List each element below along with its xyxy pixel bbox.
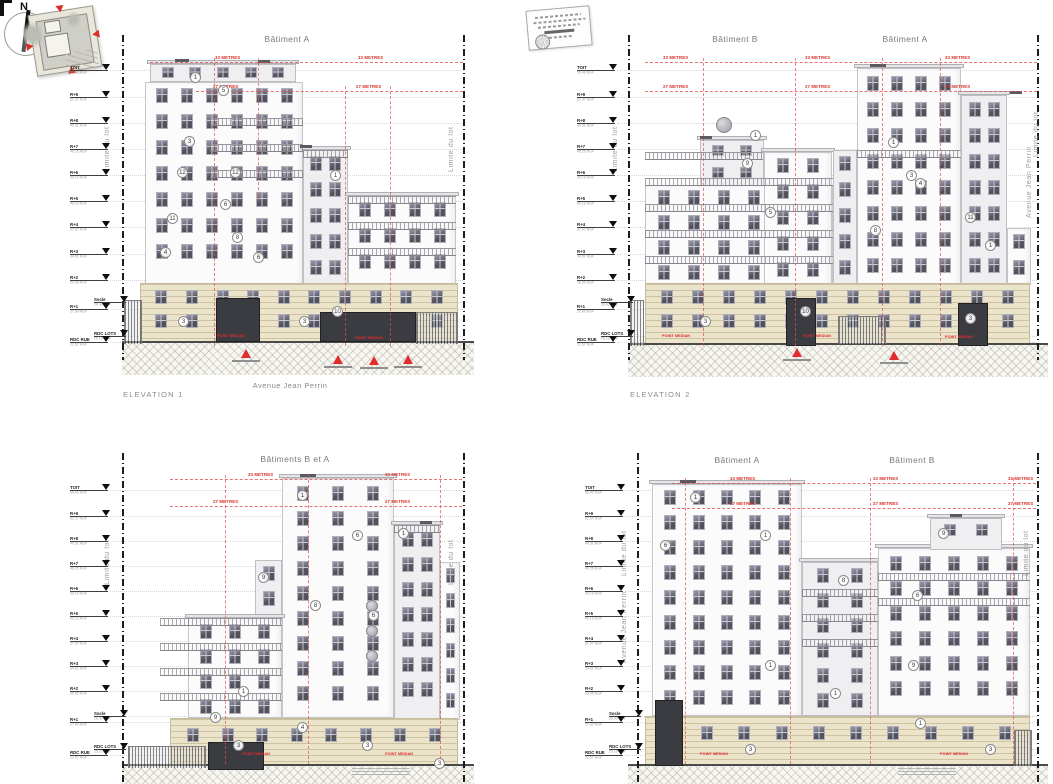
point-median-label: POINT MEDIAN — [700, 752, 728, 756]
window — [332, 561, 344, 576]
fence — [128, 746, 206, 768]
window — [367, 636, 379, 651]
lot-limit-text: Avenue Jean Perrin — [621, 591, 628, 663]
window — [701, 726, 713, 740]
window — [332, 511, 344, 526]
window — [816, 290, 828, 304]
window — [278, 314, 290, 328]
window — [721, 690, 733, 705]
window — [308, 314, 320, 328]
level-marker-icon — [617, 484, 625, 490]
window — [778, 690, 790, 705]
level-marker-icon — [609, 274, 617, 280]
window — [988, 180, 1000, 195]
level-marker-icon — [617, 749, 625, 755]
level-marker-icon — [627, 296, 635, 302]
window — [891, 180, 903, 195]
window — [977, 631, 989, 646]
window — [851, 568, 863, 583]
material-ref-circle: 8 — [838, 575, 849, 586]
fence — [838, 316, 886, 344]
height-limit-label: 27 METRES — [385, 500, 410, 504]
window — [329, 234, 341, 249]
window — [664, 665, 676, 680]
material-ref-circle: 1 — [915, 718, 926, 729]
material-ref-circle: 11 — [965, 212, 976, 223]
window — [867, 76, 879, 91]
window — [988, 258, 1000, 273]
window — [664, 565, 676, 580]
window — [940, 290, 952, 304]
window — [367, 511, 379, 526]
window — [693, 640, 705, 655]
window — [231, 192, 243, 207]
material-ref-circle: 6 — [253, 252, 264, 263]
lot-limit-line — [122, 453, 124, 784]
level-marker-icon — [609, 336, 617, 342]
level-marker-icon — [609, 117, 617, 123]
window — [400, 290, 412, 304]
window — [402, 682, 414, 697]
window — [940, 314, 952, 328]
material-ref-circle: 4 — [297, 722, 308, 733]
window — [909, 314, 921, 328]
level-guide-line — [617, 70, 1037, 71]
height-limit-line — [170, 479, 462, 480]
level-value: 30.95 NGF — [585, 692, 602, 695]
level-marker-icon — [102, 635, 110, 641]
window — [661, 314, 673, 328]
material-ref-circle: 3 — [299, 316, 310, 327]
window — [693, 540, 705, 555]
material-ref-circle: 6 — [368, 610, 379, 621]
level-marker-icon — [635, 710, 643, 716]
level-marker-icon — [609, 169, 617, 175]
material-ref-circle: 10 — [332, 306, 343, 317]
window — [778, 565, 790, 580]
level-marker-icon — [617, 685, 625, 691]
window — [1013, 234, 1025, 249]
red-axis-line — [870, 478, 871, 764]
window — [688, 240, 700, 255]
red-axis-line — [225, 475, 226, 764]
window — [749, 565, 761, 580]
window — [402, 632, 414, 647]
window — [245, 67, 257, 78]
material-ref-circle: 3 — [745, 744, 756, 755]
window — [948, 681, 960, 696]
window — [229, 699, 241, 714]
annotation-microtext — [352, 768, 410, 775]
level-value: 43.19 NGF — [585, 592, 602, 595]
window — [1006, 606, 1018, 621]
red-axis-line — [790, 478, 791, 764]
window — [367, 536, 379, 551]
window — [915, 76, 927, 91]
level-marker-icon — [102, 716, 110, 722]
height-limit-line — [672, 508, 1036, 509]
material-ref-circle: 3 — [362, 740, 373, 751]
red-axis-line — [440, 475, 441, 764]
elevation-title: Bâtiment B — [889, 455, 935, 465]
window — [156, 218, 168, 233]
material-ref-circle: 3 — [184, 136, 195, 147]
level-marker-icon — [120, 710, 128, 716]
window — [332, 611, 344, 626]
window — [658, 215, 670, 230]
red-axis-line — [345, 86, 346, 346]
level-marker-icon — [617, 660, 625, 666]
window — [431, 290, 443, 304]
window — [1006, 581, 1018, 596]
elevation-caption: ELEVATION 2 — [630, 390, 690, 399]
window — [721, 665, 733, 680]
window — [807, 210, 819, 225]
level-marker-icon — [102, 660, 110, 666]
window — [748, 265, 760, 280]
level-value: 37.07 NGF — [70, 642, 87, 645]
window — [919, 556, 931, 571]
roof-vent — [700, 136, 712, 139]
balcony-railing — [303, 150, 348, 158]
level-value: 30.95 NGF — [70, 692, 87, 695]
material-ref-circle: 9 — [210, 712, 221, 723]
level-value: 43.19 NGF — [70, 592, 87, 595]
window — [749, 615, 761, 630]
level-value: 27.89 NGF — [577, 310, 594, 313]
balcony-railing — [160, 693, 282, 701]
lot-limit-line — [628, 35, 630, 360]
window — [816, 314, 828, 328]
point-median-label: POINT MEDIAN — [803, 334, 831, 338]
window — [281, 218, 293, 233]
window — [817, 693, 829, 708]
height-limit-line — [150, 62, 463, 63]
balcony-railing — [802, 639, 878, 647]
lot-limit-line — [637, 453, 639, 784]
height-limit-label: 27 METRES — [945, 85, 970, 89]
window — [891, 102, 903, 117]
survey-triangle-base — [324, 366, 352, 368]
height-limit-label: 33 METRES — [1008, 477, 1033, 481]
window — [915, 206, 927, 221]
window — [977, 656, 989, 671]
height-limit-label: 33 METRES — [215, 56, 240, 60]
window — [156, 114, 168, 129]
window — [977, 581, 989, 596]
level-value: 27.89 NGF — [70, 723, 87, 726]
red-axis-line — [685, 478, 686, 764]
view-arrow-icon — [26, 42, 34, 51]
level-marker-icon — [102, 195, 110, 201]
window — [839, 260, 851, 275]
level-marker-icon — [102, 303, 110, 309]
window — [847, 290, 859, 304]
lot-limit-text: Limite du lot — [1033, 111, 1040, 157]
window — [738, 726, 750, 740]
level-marker-icon — [102, 685, 110, 691]
window — [402, 657, 414, 672]
window — [891, 232, 903, 247]
height-limit-label: 27 METRES — [663, 85, 688, 89]
height-limit-label: 33 METRES — [385, 473, 410, 477]
level-value: 37.07 NGF — [70, 228, 87, 231]
balcony-railing — [160, 668, 282, 676]
survey-triangle-icon — [241, 349, 251, 358]
window — [807, 262, 819, 277]
window — [278, 290, 290, 304]
entrance-door — [786, 298, 816, 346]
window — [421, 607, 433, 622]
window — [310, 234, 322, 249]
level-value: 22.57 NGF — [70, 756, 87, 759]
window — [778, 540, 790, 555]
material-ref-circle: 3 — [434, 758, 445, 769]
ground-hatch — [628, 764, 1048, 784]
window — [421, 682, 433, 697]
window — [263, 591, 275, 606]
window — [258, 699, 270, 714]
window — [1006, 681, 1018, 696]
window — [332, 486, 344, 501]
window — [718, 215, 730, 230]
window — [156, 192, 168, 207]
window — [310, 260, 322, 275]
window — [749, 690, 761, 705]
height-limit-line — [196, 91, 463, 92]
window — [748, 240, 760, 255]
window — [329, 208, 341, 223]
window — [976, 524, 988, 536]
stamp-seal-icon — [535, 34, 551, 50]
window — [878, 290, 890, 304]
balcony-railing — [645, 230, 833, 238]
level-value: 27.89 NGF — [585, 723, 602, 726]
roof-vent — [870, 64, 886, 67]
level-marker-icon — [617, 510, 625, 516]
window — [367, 661, 379, 676]
level-value: 55.43 NGF — [70, 71, 87, 74]
window — [693, 665, 705, 680]
material-ref-circle: 8 — [310, 600, 321, 611]
window — [409, 202, 421, 217]
level-marker-icon — [102, 143, 110, 149]
window — [977, 556, 989, 571]
level-value: 43.19 NGF — [577, 176, 594, 179]
material-ref-circle: 11 — [167, 213, 178, 224]
balcony-railing — [857, 150, 961, 158]
window — [200, 674, 212, 689]
level-value: 30.95 NGF — [70, 281, 87, 284]
window — [718, 190, 730, 205]
elevation-title: Bâtiments B et A — [260, 454, 329, 464]
level-marker-icon — [617, 716, 625, 722]
height-limit-label: 33 METRES — [358, 56, 383, 60]
window — [988, 128, 1000, 143]
window — [721, 590, 733, 605]
window — [988, 102, 1000, 117]
approval-stamp — [525, 5, 592, 50]
level-value: 40.13 NGF — [585, 617, 602, 620]
window — [446, 618, 455, 633]
window — [370, 290, 382, 304]
window — [693, 515, 705, 530]
window — [839, 182, 851, 197]
level-marker-icon — [635, 743, 643, 749]
level-value: 34.01 NGF — [577, 255, 594, 258]
window — [693, 615, 705, 630]
window — [969, 232, 981, 247]
street-caption: Avenue Jean Perrin — [253, 381, 328, 390]
window — [181, 88, 193, 103]
material-ref-circle: 3 — [178, 316, 189, 327]
window — [658, 240, 670, 255]
window — [919, 681, 931, 696]
roof-vent — [300, 145, 312, 148]
level-value: 34.01 NGF — [70, 667, 87, 670]
level-value: 27.89 NGF — [70, 310, 87, 313]
window — [778, 615, 790, 630]
window — [890, 556, 902, 571]
window — [229, 624, 241, 639]
ground-hatch — [122, 341, 474, 375]
survey-triangle-base — [360, 367, 388, 369]
window — [969, 258, 981, 273]
red-axis-line — [214, 58, 215, 346]
material-ref-circle: 12 — [230, 167, 241, 178]
window — [256, 728, 268, 742]
level-value: 46.25 NGF — [577, 150, 594, 153]
survey-triangle-icon — [792, 348, 802, 357]
view-arrow-icon — [55, 5, 64, 13]
lot-limit-text: Limite du lot — [448, 126, 455, 172]
level-marker-icon — [617, 635, 625, 641]
window — [664, 490, 676, 505]
balcony-railing — [348, 222, 456, 230]
window — [850, 726, 862, 740]
red-axis-line — [940, 58, 941, 346]
window — [925, 726, 937, 740]
window — [723, 290, 735, 304]
window — [712, 167, 724, 178]
survey-triangle-icon — [889, 351, 899, 360]
window — [434, 228, 446, 243]
window — [367, 686, 379, 701]
window — [272, 67, 284, 78]
site-key-map — [28, 5, 103, 77]
material-ref-circle: 9 — [742, 158, 753, 169]
window — [962, 726, 974, 740]
elevation-title: Bâtiment A — [264, 34, 309, 44]
window — [915, 232, 927, 247]
window — [281, 244, 293, 259]
level-value: 49.31 NGF — [585, 542, 602, 545]
window — [421, 657, 433, 672]
window — [258, 674, 270, 689]
window — [754, 314, 766, 328]
window — [155, 290, 167, 304]
balcony-railing — [348, 248, 456, 256]
height-limit-label: 33 METRES — [873, 477, 898, 481]
window — [281, 192, 293, 207]
window — [778, 490, 790, 505]
window — [749, 640, 761, 655]
lot-limit-line — [463, 35, 465, 360]
window — [969, 154, 981, 169]
survey-triangle-base — [394, 366, 422, 368]
balcony-railing — [802, 614, 878, 622]
material-ref-circle: 12 — [177, 167, 188, 178]
balcony-railing — [160, 618, 282, 626]
material-ref-circle: 1 — [190, 72, 201, 83]
material-ref-circle: 1 — [297, 490, 308, 501]
drawing-sheet: N 33 METRES33 METRES27 METRES27 METRESPO… — [0, 0, 1053, 784]
window — [867, 128, 879, 143]
level-marker-icon — [617, 585, 625, 591]
window — [325, 728, 337, 742]
window — [777, 184, 789, 199]
window — [658, 190, 670, 205]
window — [258, 624, 270, 639]
window — [446, 693, 455, 708]
window — [776, 726, 788, 740]
window — [1002, 314, 1014, 328]
window — [256, 218, 268, 233]
material-ref-circle: 9 — [938, 528, 949, 539]
survey-triangle-base — [232, 360, 260, 362]
level-value: 37.07 NGF — [577, 228, 594, 231]
window — [429, 728, 441, 742]
level-value: 49.31 NGF — [70, 124, 87, 127]
window — [754, 290, 766, 304]
window — [749, 590, 761, 605]
level-marker-icon — [609, 248, 617, 254]
window — [661, 290, 673, 304]
window — [988, 154, 1000, 169]
lot-limit-line — [122, 35, 124, 360]
level-marker-icon — [120, 743, 128, 749]
height-limit-label: 27 METRES — [730, 502, 755, 506]
window — [310, 208, 322, 223]
window — [813, 726, 825, 740]
balcony-railing — [210, 170, 303, 178]
window — [434, 254, 446, 269]
level-marker-icon — [102, 274, 110, 280]
material-ref-circle: 1 — [760, 530, 771, 541]
level-marker-icon — [617, 610, 625, 616]
window — [181, 244, 193, 259]
material-ref-circle: 6 — [912, 590, 923, 601]
window — [229, 649, 241, 664]
window — [688, 190, 700, 205]
level-marker-icon — [102, 117, 110, 123]
level-value: 22.57 NGF — [585, 756, 602, 759]
window — [200, 624, 212, 639]
window — [839, 156, 851, 171]
socle-base — [645, 716, 1030, 768]
level-value: 49.31 NGF — [577, 124, 594, 127]
level-marker-icon — [120, 296, 128, 302]
window — [969, 180, 981, 195]
level-value: 52.37 NGF — [70, 517, 87, 520]
window — [919, 631, 931, 646]
window — [206, 244, 218, 259]
window — [421, 632, 433, 647]
window — [367, 561, 379, 576]
window — [723, 314, 735, 328]
material-ref-circle: 1 — [750, 130, 761, 141]
height-limit-label: 33 METRES — [945, 56, 970, 60]
